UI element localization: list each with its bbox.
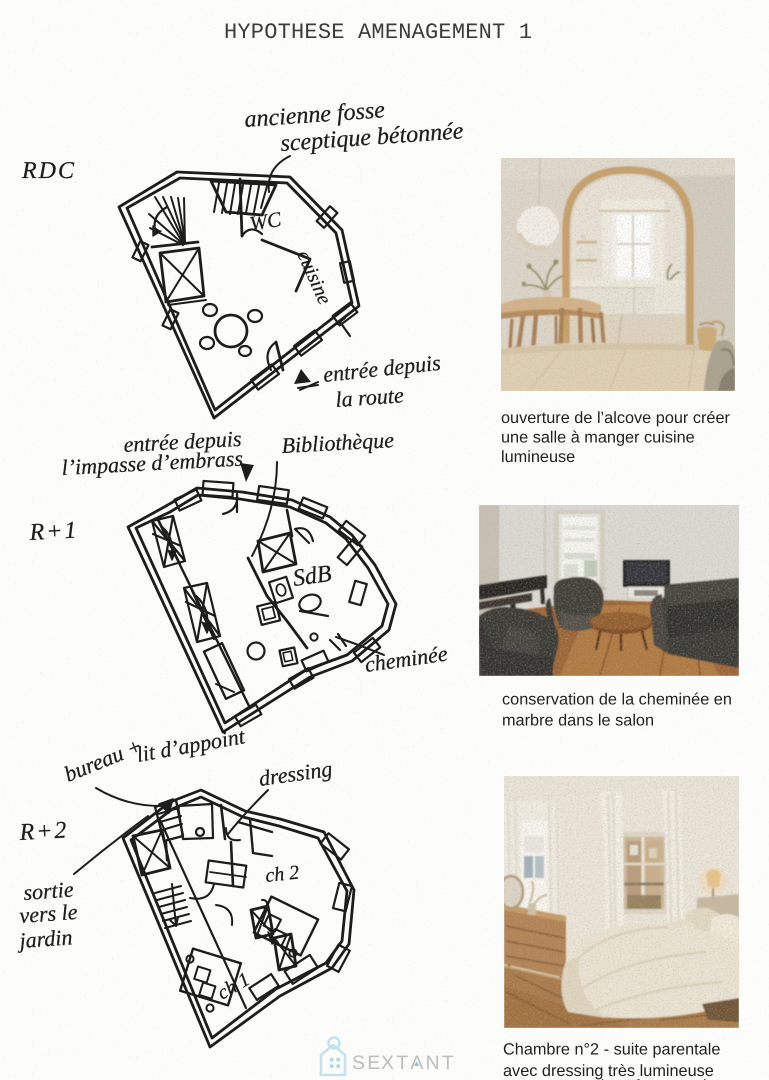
svg-text:SE: SE: [352, 1052, 382, 1074]
svg-text:Chambre n°2 - suite parentale: Chambre n°2 - suite parentale: [503, 1041, 720, 1059]
svg-text:lumineuse: lumineuse: [501, 448, 575, 466]
svg-text:jardin: jardin: [16, 924, 74, 953]
svg-text:ch 2: ch 2: [264, 862, 300, 887]
svg-text:ouverture de l’alcove pour cré: ouverture de l’alcove pour créer: [501, 409, 731, 427]
svg-text:une salle à manger cuisine: une salle à manger cuisine: [501, 429, 695, 447]
svg-text:SdB: SdB: [291, 561, 333, 592]
svg-text:marbre dans le salon: marbre dans le salon: [502, 712, 654, 730]
svg-text:R+2: R+2: [18, 817, 69, 846]
svg-text:la route: la route: [335, 382, 405, 412]
svg-text:XTΛNT: XTΛNT: [381, 1052, 456, 1074]
svg-text:R+1: R+1: [28, 517, 79, 546]
svg-text:RDC: RDC: [21, 158, 76, 184]
svg-text:conservation de la cheminée en: conservation de la cheminée en: [502, 691, 732, 709]
